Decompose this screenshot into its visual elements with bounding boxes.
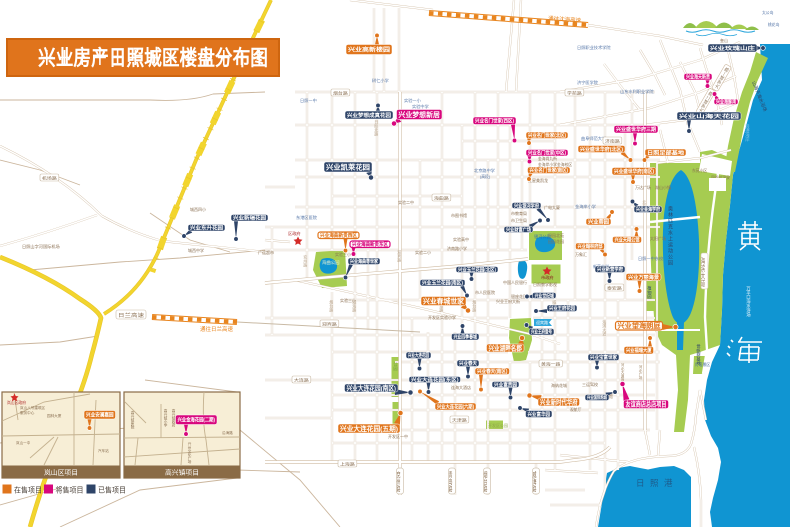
svg-text:兴业高新楼园: 兴业高新楼园	[348, 46, 390, 54]
svg-text:海滨大道: 海滨大道	[701, 254, 706, 288]
svg-text:兴业金海花园(二期): 兴业金海花园(二期)	[177, 416, 215, 424]
svg-text:烟台路: 烟台路	[329, 299, 334, 313]
svg-text:实验二小: 实验二小	[415, 249, 431, 255]
svg-text:将售项目: 将售项目	[56, 485, 84, 495]
svg-text:中国人民银行: 中国人民银行	[503, 279, 527, 285]
svg-text:兴业海曲新贵东区: 兴业海曲新贵东区	[352, 240, 389, 248]
svg-text:兴业凯莱花园: 兴业凯莱花园	[326, 162, 370, 171]
svg-text:日照一中东校: 日照一中东校	[638, 255, 664, 262]
svg-text:兴业新营学府: 兴业新营学府	[597, 265, 624, 273]
svg-text:园林大厦: 园林大厦	[47, 413, 62, 418]
svg-text:日照港: 日照港	[636, 478, 678, 488]
svg-text:万象汇: 万象汇	[575, 251, 587, 257]
svg-text:岚山八号建筑区: 岚山八号建筑区	[20, 405, 46, 410]
svg-text:威海路: 威海路	[352, 299, 357, 313]
svg-text:上海路: 上海路	[340, 460, 356, 467]
svg-text:大连路: 大连路	[294, 376, 310, 383]
svg-text:世帆赛基地: 世帆赛基地	[696, 343, 702, 366]
svg-text:已售项目: 已售项目	[98, 485, 126, 495]
svg-text:开发区实验小学: 开发区实验小学	[428, 314, 456, 320]
svg-text:友谊商店总店项目: 友谊商店总店项目	[625, 400, 667, 409]
svg-text:兴业大连花园(六期): 兴业大连花园(六期)	[437, 402, 474, 410]
svg-text:兴业望海朗庭: 兴业望海朗庭	[618, 321, 661, 330]
svg-text:树仁小学: 树仁小学	[372, 77, 389, 84]
svg-text:兴业盛世华府(南区): 兴业盛世华府(南区)	[614, 167, 654, 175]
svg-text:兴业四季春城: 兴业四季春城	[453, 333, 477, 341]
svg-text:兴业国际购城: 兴业国际购城	[587, 394, 607, 401]
svg-text:市卫生局: 市卫生局	[511, 217, 527, 223]
svg-text:兴业万丽海景: 兴业万丽海景	[628, 273, 660, 281]
svg-text:学苑路: 学苑路	[567, 89, 583, 96]
svg-text:观航厅: 观航厅	[570, 407, 582, 412]
svg-text:天津路: 天津路	[452, 416, 468, 423]
svg-text:市教育局: 市教育局	[511, 210, 527, 216]
svg-text:兴业山海天花园: 兴业山海天花园	[679, 112, 739, 120]
svg-text:兴业海曲尊世家: 兴业海曲尊世家	[350, 257, 379, 265]
svg-text:东苑小区: 东苑小区	[692, 168, 707, 173]
svg-text:兴业盛世华府三期: 兴业盛世华府三期	[616, 125, 656, 133]
svg-text:通往日兰高速: 通往日兰高速	[200, 325, 234, 333]
svg-text:三运驾校: 三运驾校	[582, 381, 598, 387]
svg-text:兴业富华园: 兴业富华园	[528, 410, 551, 418]
svg-text:实验二中: 实验二中	[398, 199, 414, 205]
svg-text:太公岛: 太公岛	[762, 10, 774, 15]
svg-text:兴业天翔公馆: 兴业天翔公馆	[615, 236, 640, 244]
svg-text:岚山一中: 岚山一中	[16, 440, 31, 445]
svg-text:市图书馆: 市图书馆	[451, 212, 467, 218]
svg-text:迎宾路: 迎宾路	[397, 249, 402, 263]
svg-text:兴业名门世家(南区): 兴业名门世家(南区)	[530, 166, 569, 174]
svg-text:金海岸小学金海校区: 金海岸小学金海校区	[538, 162, 572, 167]
svg-text:奥林匹克水上运动公园: 奥林匹克水上运动公园	[667, 205, 673, 266]
svg-text:金海尚九街: 金海尚九街	[538, 156, 557, 161]
svg-text:兴业安澜嘉园: 兴业安澜嘉园	[86, 411, 114, 419]
svg-text:兴业盛世华府(北区): 兴业盛世华府(北区)	[580, 145, 623, 153]
svg-text:兴业春天: 兴业春天	[459, 359, 478, 367]
svg-text:兴业名门世家(西区): 兴业名门世家(西区)	[475, 117, 514, 125]
svg-text:兴业财富广场: 兴业财富广场	[506, 225, 531, 233]
svg-text:烟台路: 烟台路	[472, 299, 477, 313]
svg-text:济南路小学: 济南路小学	[447, 245, 467, 251]
svg-text:高兴镇小学: 高兴镇小学	[163, 408, 168, 427]
svg-text:万达广场: 万达广场	[635, 184, 651, 190]
svg-text:兴业大连花园(南区): 兴业大连花园(南区)	[346, 383, 396, 392]
svg-text:服务中心: 服务中心	[20, 410, 35, 415]
svg-text:广运超市: 广运超市	[258, 249, 274, 255]
svg-text:烟台路: 烟台路	[333, 89, 349, 96]
svg-text:区政府: 区政府	[288, 230, 301, 237]
svg-text:兴业玉兰花园(北区): 兴业玉兰花园(北区)	[458, 265, 496, 273]
svg-text:日照一中: 日照一中	[300, 97, 317, 104]
svg-text:黄海一路: 黄海一路	[541, 360, 561, 367]
svg-text:市人民医院: 市人民医院	[475, 289, 495, 295]
svg-text:开发区一中: 开发区一中	[388, 433, 408, 439]
svg-text:兴业王府大街: 兴业王府大街	[496, 298, 520, 304]
svg-text:在售项目: 在售项目	[14, 485, 42, 495]
svg-text:城西中学: 城西中学	[188, 247, 204, 253]
svg-text:海滨大道: 海滨大道	[602, 319, 607, 337]
svg-text:兴业梦想成真花园: 兴业梦想成真花园	[347, 111, 391, 119]
svg-text:日照职业技术学院: 日照职业技术学院	[577, 44, 611, 51]
svg-text:广电大厦: 广电大厦	[544, 204, 560, 210]
svg-text:沿海路: 沿海路	[222, 430, 233, 435]
svg-text:北京路中学: 北京路中学	[474, 167, 495, 174]
svg-text:兖州路: 兖州路	[303, 254, 308, 268]
svg-text:实验三小: 实验三小	[335, 251, 351, 257]
svg-text:兴业东升花园: 兴业东升花园	[190, 224, 223, 232]
svg-text:兴业名门世家(中区): 兴业名门世家(中区)	[528, 149, 566, 157]
svg-text:兴业宝富世家: 兴业宝富世家	[590, 353, 618, 361]
svg-text:万平口海水浴场: 万平口海水浴场	[746, 286, 752, 318]
svg-text:日兰高速: 日兰高速	[118, 312, 144, 319]
svg-text:兴业名门世家(北区): 兴业名门世家(北区)	[528, 131, 566, 139]
svg-text:(高段): (高段)	[480, 174, 491, 179]
svg-text:银河公园: 银河公园	[534, 233, 551, 240]
svg-text:兴业新时代华府: 兴业新时代华府	[540, 397, 578, 406]
svg-text:兗州路: 兗州路	[396, 470, 401, 493]
svg-text:日照北路: 日照北路	[374, 120, 379, 137]
svg-text:兴业海曲新贵西区: 兴业海曲新贵西区	[320, 231, 358, 239]
svg-text:兴业富贵园: 兴业富贵园	[494, 380, 517, 388]
svg-text:实验高中: 实验高中	[453, 236, 469, 242]
svg-text:日照教学影视: 日照教学影视	[533, 281, 557, 287]
svg-text:兴业王府花园: 兴业王府花园	[549, 304, 575, 312]
svg-text:兴业新瑞花园: 兴业新瑞花园	[233, 214, 266, 222]
svg-text:山东水利职业学院: 山东水利职业学院	[620, 88, 654, 95]
svg-text:湖山小镇: 湖山小镇	[655, 184, 671, 190]
svg-text:海曲路: 海曲路	[434, 194, 450, 201]
svg-text:浪漫海岸: 浪漫海岸	[745, 123, 751, 143]
svg-text:迎宾路: 迎宾路	[322, 320, 338, 327]
svg-text:实验中学: 实验中学	[412, 103, 429, 110]
svg-text:日照山字河国际机场: 日照山字河国际机场	[22, 243, 60, 250]
svg-text:济南路: 济南路	[605, 137, 621, 144]
svg-text:济宁医学院: 济宁医学院	[577, 79, 599, 86]
svg-text:太阳广场: 太阳广场	[650, 235, 666, 241]
svg-text:城西四小: 城西四小	[190, 206, 206, 212]
svg-text:烟台路: 烟台路	[483, 470, 488, 493]
svg-text:兴业银河学府: 兴业银河学府	[514, 201, 540, 209]
svg-text:兴业大连花园(东区): 兴业大连花园(东区)	[411, 375, 459, 383]
svg-text:日照足部基地: 日照足部基地	[647, 148, 685, 156]
svg-text:汽车站: 汽车站	[98, 448, 109, 453]
svg-text:兴业大连花园: 兴业大连花园	[408, 351, 429, 359]
svg-text:市政府: 市政府	[541, 274, 554, 281]
svg-text:兴业湖畔名郡: 兴业湖畔名郡	[488, 343, 522, 352]
svg-text:实验一小: 实验一小	[404, 97, 422, 104]
svg-text:兴业春城世家: 兴业春城世家	[423, 296, 464, 305]
svg-text:海纳花城: 海纳花城	[551, 382, 567, 388]
svg-text:兴业王府壹号: 兴业王府壹号	[531, 328, 552, 336]
svg-text:高兴镇项目: 高兴镇项目	[165, 468, 199, 477]
svg-text:青岛路: 青岛路	[448, 470, 453, 493]
svg-text:曲阜师范大学: 曲阜师范大学	[581, 135, 606, 142]
svg-text:开发区公园: 开发区公园	[488, 422, 508, 428]
svg-text:金海岸小学: 金海岸小学	[575, 203, 596, 210]
svg-text:威海路: 威海路	[532, 470, 537, 493]
svg-text:迎宾路: 迎宾路	[536, 319, 548, 325]
svg-text:兴业福瑞大厦: 兴业福瑞大厦	[626, 346, 652, 354]
svg-text:兴业世纪城: 兴业世纪城	[534, 291, 554, 299]
svg-text:奎山: 奎山	[720, 37, 728, 43]
svg-text:兴业海天新贵: 兴业海天新贵	[686, 73, 711, 81]
svg-text:海曲公园: 海曲公园	[322, 259, 340, 266]
svg-text:兴业蓉园: 兴业蓉园	[588, 218, 609, 226]
svg-text:兴州文化广场: 兴州文化广场	[187, 441, 192, 464]
svg-text:兴业翰林府邸: 兴业翰林府邸	[578, 242, 604, 250]
svg-text:兴业金海学府: 兴业金海学府	[636, 205, 661, 213]
svg-text:机场路: 机场路	[42, 174, 58, 181]
svg-text:桃花岛: 桃花岛	[768, 22, 780, 27]
svg-text:兴业梦想新居: 兴业梦想新居	[398, 110, 440, 119]
svg-text:兴业海豚湾: 兴业海豚湾	[716, 98, 737, 106]
svg-text:兴业玉兰花园(南区): 兴业玉兰花园(南区)	[422, 279, 463, 287]
svg-text:东港区医院: 东港区医院	[296, 214, 318, 221]
svg-text:高兴镇政府: 高兴镇政府	[171, 408, 176, 427]
svg-text:岚山区政府: 岚山区政府	[7, 400, 26, 405]
svg-text:高兴镇医院: 高兴镇医院	[130, 410, 135, 429]
svg-text:岚山区项目: 岚山区项目	[44, 468, 78, 477]
svg-text:兴业玫瑰山庄: 兴业玫瑰山庄	[710, 44, 756, 52]
svg-text:兴业春天(南区): 兴业春天(南区)	[477, 367, 508, 375]
svg-text:连海大酒店: 连海大酒店	[451, 384, 471, 390]
svg-text:泰安路: 泰安路	[607, 284, 623, 291]
svg-text:兴业大连花园(五期): 兴业大连花园(五期)	[340, 424, 398, 433]
svg-text:植物园: 植物园	[648, 285, 653, 300]
svg-text:河北广场: 河北广场	[638, 364, 643, 380]
